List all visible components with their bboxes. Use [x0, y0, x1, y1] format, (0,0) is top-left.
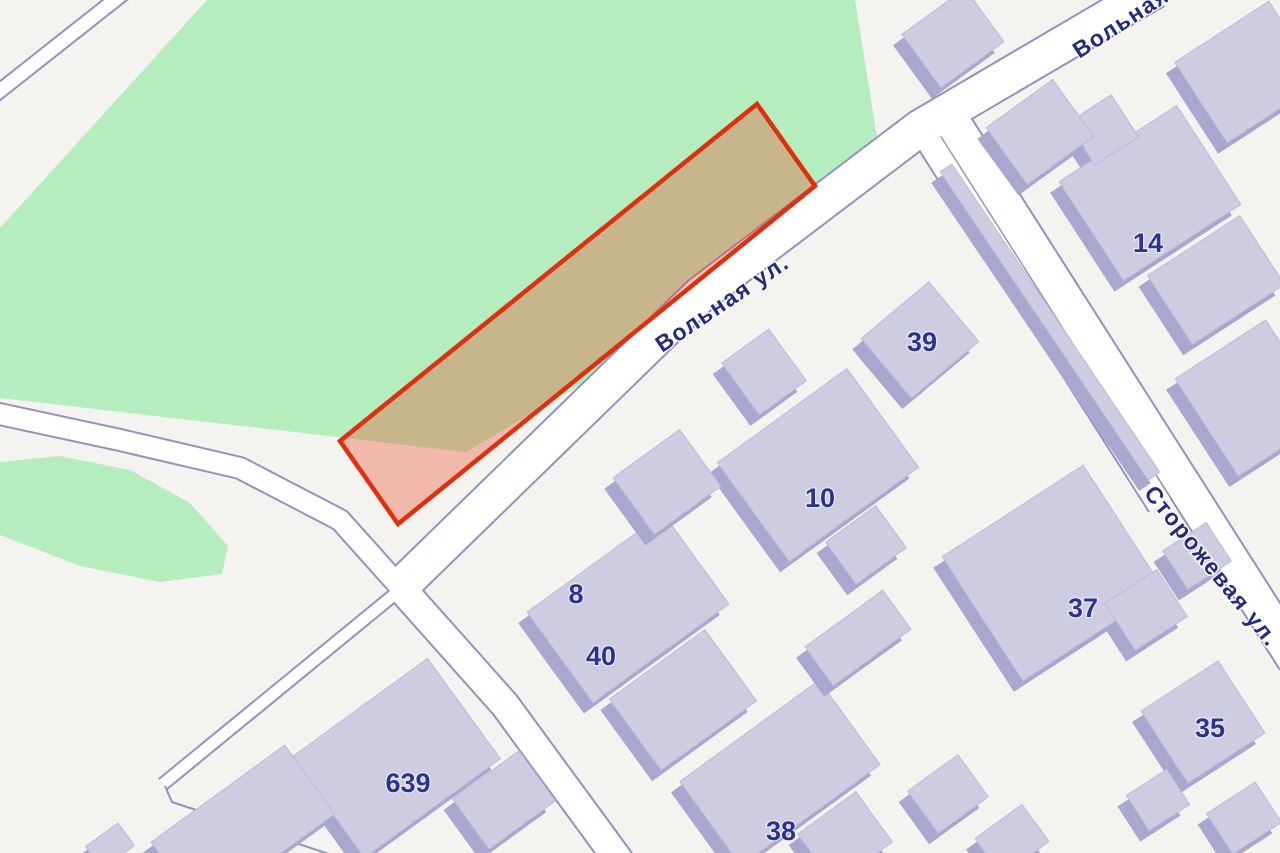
- map-view[interactable]: Вольная ул.Вольная ул.Сторожевая ул.1439…: [0, 0, 1280, 853]
- house-number-8: 8: [568, 579, 583, 609]
- house-number-37: 37: [1068, 593, 1098, 623]
- house-number-35: 35: [1195, 713, 1225, 743]
- house-number-40: 40: [586, 641, 616, 671]
- house-number-10: 10: [805, 483, 835, 513]
- house-number-38: 38: [766, 816, 796, 846]
- house-number-39: 39: [907, 327, 937, 357]
- house-number-14: 14: [1133, 228, 1163, 258]
- map-canvas[interactable]: Вольная ул.Вольная ул.Сторожевая ул.1439…: [0, 0, 1280, 853]
- house-number-639: 639: [385, 768, 430, 798]
